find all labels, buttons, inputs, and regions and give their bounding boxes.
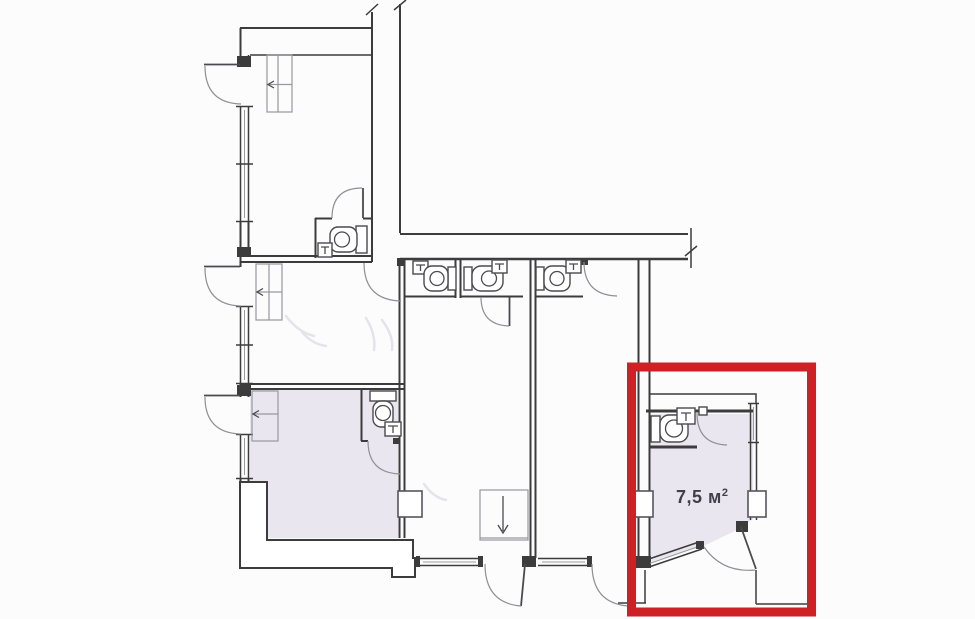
wardrobe-icon <box>256 264 282 320</box>
floor-plan: 7,5 м2 <box>0 0 975 619</box>
door-swing-icon <box>485 556 536 606</box>
window-icon <box>236 106 253 222</box>
toilet-icon <box>330 226 367 253</box>
door-swing-icon <box>584 262 617 296</box>
sink-icon <box>566 260 581 273</box>
middle-room-bottom-wall <box>240 384 404 389</box>
wardrobe-icon <box>267 55 292 112</box>
upper-bathroom <box>315 188 372 258</box>
door-swing-icon <box>481 297 510 326</box>
door-swing-icon <box>592 564 633 606</box>
door-swing-icon <box>364 263 401 301</box>
sink-icon <box>492 260 507 273</box>
door-swing-icon <box>204 267 241 307</box>
room-area-label: 7,5 м2 <box>676 487 728 507</box>
window-icon <box>538 556 592 567</box>
window-icon <box>236 306 253 384</box>
toilet-icon <box>424 266 456 291</box>
arrow-down-icon <box>498 496 508 533</box>
door-swing-icon <box>204 65 241 105</box>
wall-pilaster <box>748 491 766 517</box>
corridor-wall <box>400 228 697 268</box>
floor-plan-drawing: 7,5 м2 <box>0 0 975 619</box>
window-icon <box>416 556 483 567</box>
wall-pilaster <box>398 491 422 517</box>
toilet-icon <box>536 266 570 291</box>
door-swing-icon <box>204 396 241 435</box>
sink-icon <box>677 408 695 424</box>
sink-icon <box>318 243 332 257</box>
wc-partitions <box>397 258 650 558</box>
sink-icon <box>385 422 401 436</box>
storage-closet <box>480 490 528 540</box>
vertical-structural-wall <box>366 0 406 262</box>
